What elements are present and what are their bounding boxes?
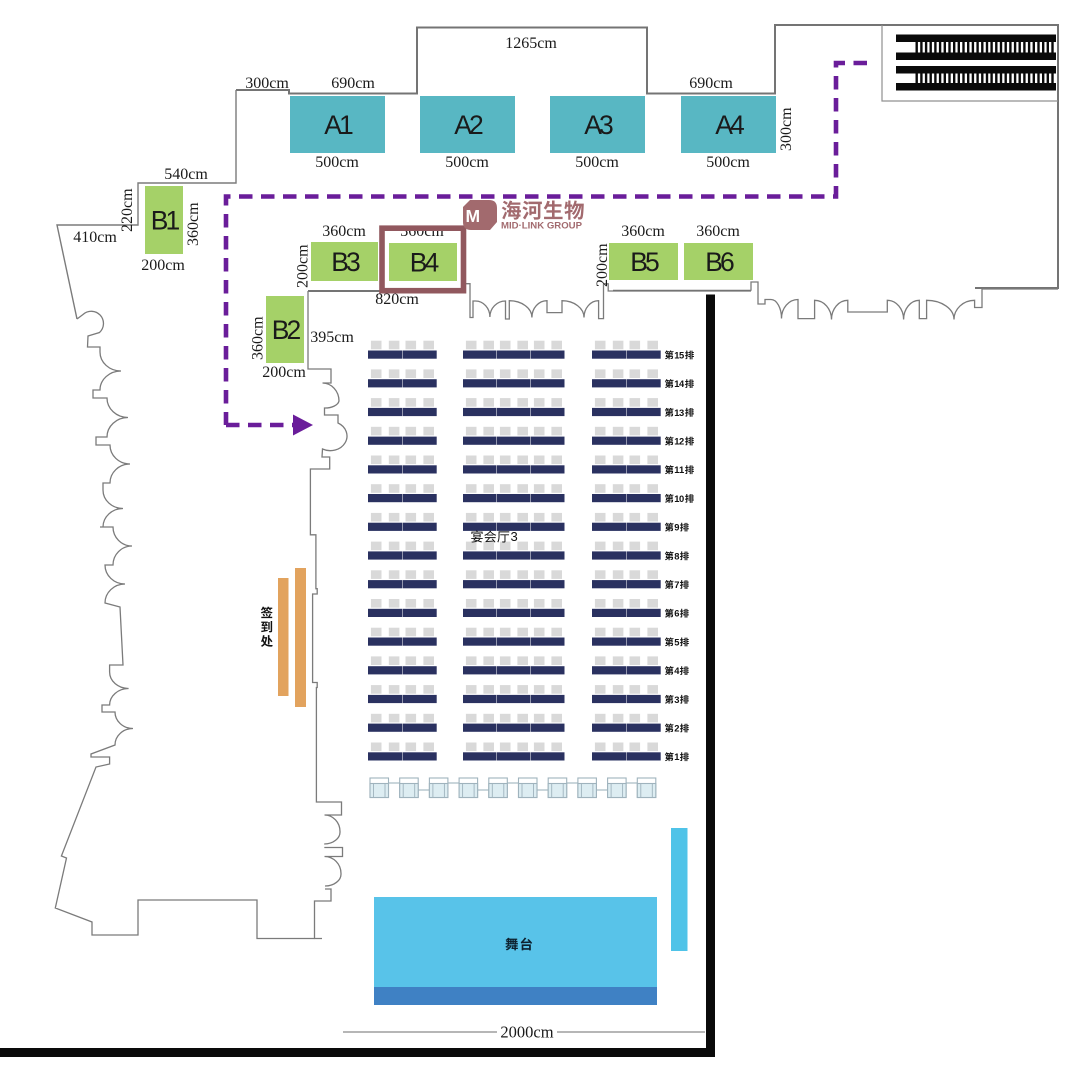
svg-text:2000cm: 2000cm bbox=[500, 1023, 553, 1042]
svg-text:500cm: 500cm bbox=[315, 154, 359, 171]
svg-text:220cm: 220cm bbox=[119, 188, 136, 232]
svg-text:410cm: 410cm bbox=[73, 229, 117, 246]
svg-text:360cm: 360cm bbox=[185, 202, 202, 246]
svg-text:3: 3 bbox=[674, 694, 679, 705]
svg-text:A1: A1 bbox=[324, 110, 353, 140]
svg-text:MID·LINK GROUP: MID·LINK GROUP bbox=[501, 221, 583, 232]
svg-text:B5: B5 bbox=[630, 247, 659, 277]
svg-text:300cm: 300cm bbox=[245, 75, 289, 92]
svg-text:500cm: 500cm bbox=[706, 154, 750, 171]
svg-text:15: 15 bbox=[674, 349, 684, 360]
svg-text:200cm: 200cm bbox=[262, 364, 306, 381]
svg-text:300cm: 300cm bbox=[778, 107, 795, 151]
svg-text:8: 8 bbox=[674, 550, 679, 561]
svg-text:360cm: 360cm bbox=[621, 223, 665, 240]
svg-text:200cm: 200cm bbox=[594, 243, 611, 287]
svg-text:A3: A3 bbox=[584, 110, 613, 140]
svg-text:14: 14 bbox=[674, 378, 685, 389]
svg-text:200cm: 200cm bbox=[295, 244, 312, 288]
svg-text:B4: B4 bbox=[410, 248, 439, 278]
svg-text:200cm: 200cm bbox=[141, 257, 185, 274]
svg-text:500cm: 500cm bbox=[445, 154, 489, 171]
svg-text:690cm: 690cm bbox=[689, 75, 733, 92]
svg-text:A2: A2 bbox=[454, 110, 483, 140]
svg-text:540cm: 540cm bbox=[164, 166, 208, 183]
svg-text:6: 6 bbox=[674, 608, 679, 619]
svg-text:1: 1 bbox=[674, 751, 679, 762]
svg-text:5: 5 bbox=[674, 636, 679, 647]
svg-text:12: 12 bbox=[674, 436, 684, 447]
svg-text:11: 11 bbox=[674, 464, 684, 475]
svg-text:B2: B2 bbox=[272, 315, 301, 345]
svg-text:360cm: 360cm bbox=[696, 223, 740, 240]
svg-text:360cm: 360cm bbox=[322, 223, 366, 240]
svg-text:360cm: 360cm bbox=[250, 316, 267, 360]
svg-text:1265cm: 1265cm bbox=[505, 35, 557, 52]
svg-text:B1: B1 bbox=[151, 206, 180, 236]
svg-text:10: 10 bbox=[674, 493, 684, 504]
svg-text:A4: A4 bbox=[715, 110, 744, 140]
svg-text:7: 7 bbox=[674, 579, 679, 590]
svg-text:690cm: 690cm bbox=[331, 75, 375, 92]
svg-text:13: 13 bbox=[674, 407, 684, 418]
svg-text:M: M bbox=[466, 206, 481, 226]
svg-text:820cm: 820cm bbox=[375, 291, 419, 308]
svg-text:B3: B3 bbox=[331, 247, 360, 277]
svg-text:395cm: 395cm bbox=[310, 329, 354, 346]
svg-text:3: 3 bbox=[511, 529, 518, 544]
svg-text:B6: B6 bbox=[705, 247, 734, 277]
svg-text:9: 9 bbox=[674, 522, 679, 533]
svg-text:2: 2 bbox=[674, 723, 679, 734]
svg-text:500cm: 500cm bbox=[575, 154, 619, 171]
